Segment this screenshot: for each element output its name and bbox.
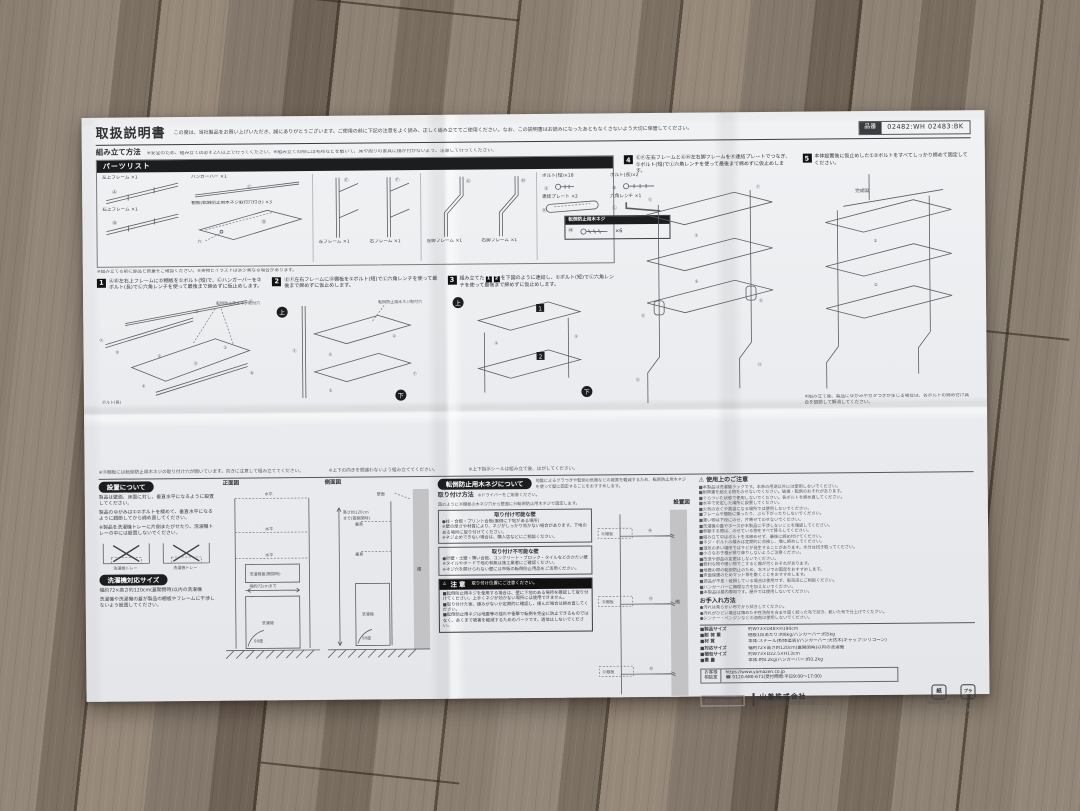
part-label: ボルト(短)×18 (542, 174, 574, 179)
front-view-diagram: 水平 水平 水平 洗濯機蓋(開閉時) 幅約72cmまで 洗濯機 (223, 488, 323, 671)
svg-text:90度: 90度 (254, 637, 263, 643)
svg-text:①: ① (329, 351, 333, 356)
svg-text:Ⓖ: Ⓖ (466, 178, 471, 185)
care-line: ●シンナー・ベンジンなどの溶剤は使用しないでください。 (700, 613, 975, 621)
svg-text:①: ① (329, 387, 333, 392)
svg-text:Ⓓ棚板: Ⓓ棚板 (601, 530, 613, 536)
svg-text:下: 下 (584, 389, 590, 396)
steps-4-5: 4 ⒺⒻ左右フレームとⒼⒽ左右脚フレームをⓀ連結プレートでつなぎ、①ボルト(短)… (624, 152, 974, 471)
separator (536, 172, 538, 260)
assembly-area: パーツリスト 左上フレーム ×1 Ⓐ 右上フレーム ×1 (96, 152, 974, 476)
svg-text:Ⓔ: Ⓔ (293, 347, 297, 353)
svg-text:Ⓕ: Ⓕ (395, 176, 400, 183)
parts-col-right-leg: Ⓗ 右脚フレーム ×1 (481, 172, 532, 260)
svg-text:穴: 穴 (198, 238, 202, 244)
instruction-sheet: 取扱説明書 この度は、当社製品をお買い上げいただき、誠にありがとうございます。ご… (81, 110, 989, 702)
recycle-marks: 紙 梱包箱・取説 プラ 袋 (928, 684, 976, 705)
company-row: 取説 02482/02483 山善株式会社 〒550-8660 大阪市西区北堀江… (700, 684, 975, 707)
svg-text:①: ① (574, 334, 578, 339)
info-column: ⚠ 使用上のご注意 ■本製品は洗濯機ラックです。本来の用途以外には使用しないでく… (699, 474, 976, 688)
assembly-method-heading: 組み立て方法 (96, 148, 141, 158)
step-5-number: 5 (802, 154, 811, 163)
svg-text:Ⓓ: Ⓓ (194, 360, 198, 366)
svg-text:まで(蓋開閉時): まで(蓋開閉時) (343, 515, 371, 521)
caution-box: ⚠ 注意 取り付け位置にご注意ください。 ■転倒防止用ネジを使用する場合は、壁に… (439, 577, 593, 632)
svg-text:Ⓑ: Ⓑ (250, 369, 254, 375)
step-2-diagram: 上 転倒防止用木ネジ取付穴 ① ① ① Ⓔ Ⓕ 下 (272, 289, 425, 408)
part-sketch-left-frame: Ⓔ (318, 173, 365, 239)
plastic-recycle-mark: プラ 袋 (960, 684, 975, 705)
svg-text:水平: 水平 (265, 525, 273, 531)
method-text: 図のようにⒹ棚板の木ネジ穴から壁面にⓂ転倒防止用木ネジで固定します。 (438, 500, 592, 507)
anti-tip-heading: 転倒防止用木ネジについて (438, 478, 532, 490)
step-2-number: 2 (272, 277, 281, 286)
svg-text:Ⓗ: Ⓗ (758, 361, 762, 367)
part-sketch-right-frame: Ⓕ (369, 173, 416, 239)
part-sketch-joint-plate: Ⓚ (542, 200, 604, 215)
svg-text:転倒防止用木ネジ取付穴: 転倒防止用木ネジ取付穴 (216, 299, 260, 305)
svg-text:壁: 壁 (415, 567, 422, 572)
svg-text:Ⓔ: Ⓔ (648, 196, 652, 202)
doc-code-box: 取説 02482/02483 (701, 696, 745, 707)
svg-text:上: 上 (279, 308, 285, 316)
side-view-label: 側面図 (325, 479, 431, 487)
parts-col-left-leg: Ⓖ 左脚フレーム ×1 (426, 172, 477, 260)
svg-text:①: ① (695, 278, 699, 283)
mount-diagram-heading: 設置図 (596, 500, 690, 508)
svg-text:洗濯機トレー: 洗濯機トレー (173, 564, 197, 570)
svg-text:①: ① (544, 186, 548, 192)
svg-text:垂直: 垂直 (355, 521, 363, 527)
svg-text:壁面: 壁面 (377, 490, 385, 496)
installation-column: 設置について 製品は壁面、床面に対し、垂直水平になるように設置してください。 製… (99, 479, 431, 694)
contact-phone: ☎ 0120-680-671(受付時間:平日9:00〜17:00) (726, 675, 822, 681)
svg-text:下: 下 (398, 392, 404, 399)
svg-text:Ⓑ: Ⓑ (112, 220, 117, 227)
method-note: ※ドライバーをご用意ください。 (478, 492, 540, 498)
svg-text:Ⓓ: Ⓓ (261, 219, 266, 226)
parts-col-bar-shelf: ハンガーバー ×1 Ⓒ 棚板(転倒防止用木ネジ取付穴付き) ×3 Ⓓ (191, 174, 308, 263)
anti-tip-column: 転倒防止用木ネジについて 地震によるグラつきや転倒の危険などの被害を軽減するため… (438, 477, 692, 691)
svg-text:Ⓕ: Ⓕ (413, 370, 417, 376)
svg-text:②: ② (195, 309, 199, 314)
parts-list-box: パーツリスト 左上フレーム ×1 Ⓐ 右上フレーム ×1 (96, 156, 615, 268)
setup-p2: 製品のゆがみは①②ボルトを緩めて、垂直水平になるように調節してから締め直してくだ… (99, 510, 217, 523)
svg-text:水平: 水平 (265, 490, 273, 496)
svg-text:Ⓚ: Ⓚ (542, 207, 547, 214)
svg-text:洗濯機蓋(開閉時): 洗濯機蓋(開閉時) (249, 570, 281, 576)
front-view: 正面図 水平 水平 水平 洗濯機蓋(開閉時) 幅約72cmまで (223, 480, 323, 693)
svg-text:洗濯機: 洗濯機 (362, 611, 374, 617)
part-sketch-left-top-frame: Ⓐ (102, 181, 186, 208)
step-3-text: 組み立てた12を下図のように連結し、①ボルト(短)でⓁ六角レンチを使って最後まで… (460, 274, 615, 289)
washer-size-p2: 洗濯機や洗濯機の蓋が製品の棚板やフレームに干渉しないよう設置してください。 (100, 597, 218, 610)
svg-text:Ⓜ: Ⓜ (648, 527, 652, 533)
part-number-value: 02482:WH 02483:BK (881, 121, 969, 134)
svg-text:Ⓓ棚板: Ⓓ棚板 (602, 598, 614, 604)
anti-tip-intro: 地震によるグラつきや転倒の危険などの被害を軽減するため、転倒防止用木ネジを使って… (535, 477, 689, 489)
part-label: 左脚フレーム ×1 (427, 238, 477, 244)
note-seal: ※上下指示シールは組み立て後、はがしてください。 (469, 466, 617, 473)
mount-diagram: 壁 Ⓓ棚板 Ⓜ Ⓓ棚板 Ⓜ Ⓓ棚板 (596, 507, 692, 700)
svg-text:Ⓒ: Ⓒ (249, 297, 253, 303)
setup-p3: ※製品を洗濯機トレーに片側またがせたり、洗濯機トレーの中には設置しないでください… (99, 525, 217, 538)
part-sketch-right-leg-frame: Ⓗ (481, 172, 532, 238)
plastic-recycle-icon: プラ (960, 684, 975, 699)
svg-text:Ⓜ: Ⓜ (649, 595, 653, 601)
step-1-diagram: 転倒防止用木ネジ取付穴 ボルト(長) ① ① ① ② ② Ⓐ Ⓑ Ⓒ Ⓓ (97, 290, 264, 409)
warning-icon: ⚠ (443, 582, 447, 588)
mount-diagram-wrap: 設置図 壁 Ⓓ棚板 Ⓜ Ⓓ棚板 Ⓜ (596, 500, 692, 701)
svg-text:高さ約120cm: 高さ約120cm (343, 509, 369, 515)
precaution-line: ■本製品は屋内専用です。屋外では使用しないでください。 (700, 587, 975, 595)
svg-text:Ⓚ: Ⓚ (759, 297, 763, 303)
part-label: 左フレーム ×1 (319, 239, 365, 245)
side-view: 側面図 壁 壁面 垂直 垂直 高さ約120cm まで(蓋開閉時) (325, 479, 433, 692)
plank-joint (260, 762, 459, 785)
step-5-diagram-complete: 完成図 ① ② (802, 165, 964, 394)
svg-text:垂直: 垂直 (355, 551, 363, 557)
wood-screw-tag: Ⓜ (568, 229, 573, 235)
svg-text:Ⓛ: Ⓛ (612, 205, 617, 212)
ok-wall-line: ※ネジ止めできない場合は、購入店などにご相談ください。 (442, 535, 588, 542)
svg-text:Ⓐ: Ⓐ (99, 336, 103, 342)
washer-size-heading: 洗濯機対応サイズ (99, 574, 167, 586)
washer-size-p1: 幅約72×高さ約120cm(蓋開閉時)以内の洗濯機 (100, 588, 218, 595)
company-address: 〒550-8660 大阪市西区北堀江1-3-15 (760, 700, 833, 706)
parts-col-right-frame: Ⓕ 右フレーム ×1 (369, 173, 416, 261)
front-view-label: 正面図 (223, 480, 321, 488)
part-sketch-hanger-bar: Ⓒ (191, 180, 307, 201)
spec-value: 本体:約8.2kg/ハンガーバー:約0.2kg (748, 656, 975, 664)
svg-text:幅約72cmまで: 幅約72cmまで (250, 582, 277, 588)
part-sketch-left-leg-frame: Ⓖ (426, 172, 477, 238)
wood-screw-count: ×6 (615, 228, 622, 234)
ng-wall-box: 取り付け不可能な壁 ●砂壁・土壁・薄い合板、コンクリート・ブロック・タイルなどの… (438, 546, 592, 576)
step-5: 5 本体設置後に仮止めした①②ボルトをすべてしっかり締めて固定してください。 完… (802, 152, 973, 469)
tray-warning-diagram: 洗濯機トレー 洗濯機トレー (99, 537, 217, 572)
wood-screw-sketch (577, 226, 611, 238)
step-1-number: 1 (97, 278, 106, 287)
caution-sub: 取り付け位置にご注意ください。 (471, 581, 537, 587)
spec-label: ■重 量 (700, 658, 748, 665)
svg-text:Ⓕ: Ⓕ (756, 183, 760, 189)
intro-text: この度は、当社製品をお買い上げいただき、誠にありがとうございます。ご使用の前に下… (174, 120, 851, 136)
svg-text:Ⓓ棚板: Ⓓ棚板 (602, 668, 614, 674)
contact-label-2: 相談室 (704, 676, 717, 682)
part-label: 右脚フレーム ×1 (482, 238, 532, 244)
caution-line: ■転倒防止用ネジは地震等の揺れや衝撃で転倒を完全に防止できるものではなく、あくま… (443, 612, 589, 629)
svg-text:Ⓔ: Ⓔ (344, 177, 349, 184)
setup-p1: 製品は壁面、床面に対し、垂直水平になるように設置してください。 (99, 495, 217, 508)
svg-text:①: ① (494, 340, 498, 345)
svg-text:90度: 90度 (362, 635, 371, 641)
svg-text:上: 上 (455, 299, 461, 307)
step-4: 4 ⒺⒻ左右フレームとⒼⒽ左右脚フレームをⓀ連結プレートでつなぎ、①ボルト(短)… (624, 154, 795, 471)
svg-text:Ⓐ: Ⓐ (112, 188, 117, 195)
step-3-diagram: 上 1 2 ① ① 下 (448, 288, 601, 401)
ng-wall-line: ※ネジ穴を開けられない壁には市販の転倒防止用品をご活用ください。 (442, 566, 588, 573)
svg-text:1: 1 (538, 307, 542, 313)
note-updown: ※上下の向きを間違わないよう組み立ててください。 (329, 467, 459, 474)
company-block: 山善株式会社 〒550-8660 大阪市西区北堀江1-3-15 (753, 692, 833, 706)
parts-grid: 左上フレーム ×1 Ⓐ 右上フレーム ×1 Ⓑ (97, 168, 614, 266)
svg-text:洗濯機トレー: 洗濯機トレー (113, 565, 137, 571)
plank-joint (300, 0, 519, 21)
ok-wall-box: 取り付け可能な壁 ●柱・合板・プリント合板(裏側に下地がある場所)※壁の厚さや材… (438, 509, 592, 544)
svg-text:水平: 水平 (265, 551, 273, 557)
part-number-box: 品番 02482:WH 02483:BK (858, 120, 970, 135)
spec-row: ■重 量 本体:約8.2kg/ハンガーバー:約0.2kg (700, 656, 975, 665)
svg-text:①: ① (142, 383, 146, 388)
svg-text:①: ① (393, 333, 397, 338)
step-4-diagram: Ⓚ Ⓚ Ⓔ Ⓕ Ⓖ Ⓗ ① ① (624, 174, 786, 413)
svg-text:Ⓖ: Ⓖ (636, 376, 640, 382)
part-label: 右フレーム ×1 (370, 239, 416, 245)
parts-col-top-frames: 左上フレーム ×1 Ⓐ 右上フレーム ×1 Ⓑ (102, 175, 187, 264)
svg-text:①: ① (223, 344, 227, 349)
page-title: 取扱説明書 (96, 126, 166, 143)
method-heading: 取り付け方法 (438, 492, 474, 500)
caution-heading: 注意 (450, 581, 467, 589)
svg-text:Ⓜ: Ⓜ (649, 665, 653, 671)
bottom-area: 設置について 製品は壁面、床面に対し、垂直水平になるように設置してください。 製… (99, 474, 976, 694)
step-3: 3 組み立てた12を下図のように連結し、①ボルト(短)でⓁ六角レンチを使って最後… (448, 274, 617, 466)
separator (420, 173, 422, 261)
step-1: 1 ⒶⒷ左右上フレームにⒹ棚板を①ボルト(短)で、Ⓒハンガーバーを②ボルト(長)… (97, 277, 266, 469)
contact-box: お客様 相談室 https://www.yamazen.co.jp ☎ 0120… (700, 666, 898, 683)
svg-text:Ⓒ: Ⓒ (247, 183, 252, 190)
svg-text:①: ① (694, 232, 698, 237)
parts-col-left-frame: Ⓔ 左フレーム ×1 (318, 173, 365, 261)
setup-heading: 設置について (99, 482, 154, 494)
paper-recycle-icon: 紙 (932, 684, 947, 699)
part-sketch-right-top-frame: Ⓑ (102, 212, 186, 239)
svg-text:Ⓗ: Ⓗ (521, 177, 526, 184)
part-sketch-shelf: Ⓓ 穴 (191, 205, 307, 244)
mark-caption: 梱包箱・取説 (928, 700, 951, 705)
svg-text:2: 2 (538, 355, 542, 361)
svg-text:②: ② (873, 282, 877, 287)
step-4-number: 4 (624, 155, 633, 164)
part-number-label: 品番 (859, 122, 881, 134)
svg-text:②: ② (115, 349, 119, 354)
part-sketch-bolt-short: ① (542, 179, 598, 192)
svg-text:①: ① (873, 238, 877, 243)
svg-text:転倒防止用木ネジ取付穴: 転倒防止用木ネジ取付穴 (378, 298, 422, 304)
svg-text:Ⓚ: Ⓚ (641, 312, 645, 318)
note-shelf-holes: ※Ⓓ棚板には転倒防止用木ネジの取り付け穴が開いています。向きに注意して組み立てて… (99, 468, 319, 476)
svg-text:②: ② (612, 185, 616, 191)
note-wobble: ※組み立て後、製品にゆがみやガタつきが生じる場合は、各ボルトの締め付け具合を調節… (804, 393, 973, 406)
steps-1-3: 1 ⒶⒷ左右上フレームにⒹ棚板を①ボルト(短)で、Ⓒハンガーバーを②ボルト(長)… (97, 274, 617, 469)
step-4-text: ⒺⒻ左右フレームとⒼⒽ左右脚フレームをⓀ連結プレートでつなぎ、①ボルト(短)でⓁ… (636, 154, 793, 175)
separator (312, 174, 314, 262)
mark-caption: 袋 (961, 700, 976, 705)
svg-text:洗濯機: 洗濯機 (262, 619, 274, 625)
part-label: 連結プレート ×2 (542, 194, 578, 199)
step-3-number: 3 (448, 275, 457, 284)
side-view-diagram: 壁 壁面 垂直 垂直 高さ約120cm まで(蓋開閉時) 洗濯機 90度 (325, 487, 433, 670)
svg-text:完成図: 完成図 (855, 187, 869, 194)
svg-text:ボルト(長): ボルト(長) (102, 398, 122, 404)
paper-recycle-mark: 紙 梱包箱・取説 (928, 684, 951, 705)
svg-text:①: ① (158, 353, 162, 358)
step-2: 2 ⒺⒻ左右フレームにⒹ棚板を①ボルト(短)でⓁ六角レンチを使って最後まで締めず… (272, 276, 441, 468)
